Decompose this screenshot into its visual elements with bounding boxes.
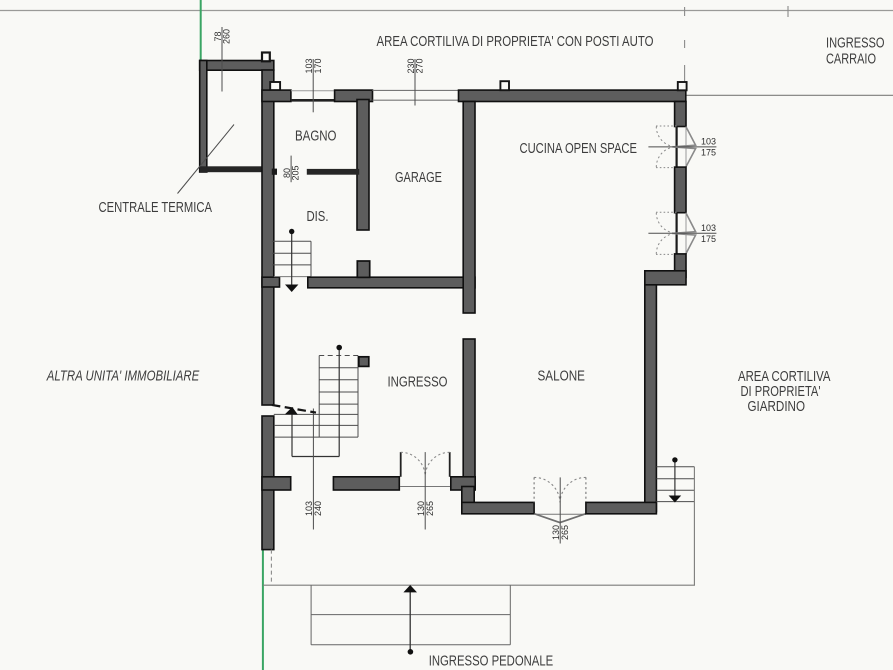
svg-text:270: 270 (415, 58, 425, 73)
svg-text:AREA CORTILIVA DI PROPRIETA' C: AREA CORTILIVA DI PROPRIETA' CON POSTI A… (377, 34, 654, 50)
svg-text:175: 175 (701, 148, 716, 158)
svg-text:INGRESSO PEDONALE: INGRESSO PEDONALE (429, 654, 554, 670)
svg-text:DIS.: DIS. (307, 209, 329, 225)
svg-text:CARRAIO: CARRAIO (826, 52, 876, 68)
svg-text:103: 103 (701, 223, 716, 233)
svg-text:GIARDINO: GIARDINO (748, 399, 806, 415)
svg-text:INGRESSO: INGRESSO (826, 36, 885, 52)
svg-text:265: 265 (425, 501, 435, 516)
svg-text:175: 175 (701, 234, 716, 244)
svg-text:GARAGE: GARAGE (395, 170, 442, 186)
svg-text:AREA CORTILIVA: AREA CORTILIVA (738, 369, 831, 385)
svg-text:BAGNO: BAGNO (295, 129, 337, 145)
svg-text:ALTRA UNITA' IMMOBILIARE: ALTRA UNITA' IMMOBILIARE (46, 369, 200, 385)
svg-text:265: 265 (560, 525, 570, 540)
svg-text:103: 103 (701, 137, 716, 147)
svg-text:260: 260 (222, 29, 232, 44)
svg-text:INGRESSO: INGRESSO (388, 375, 448, 391)
svg-text:170: 170 (313, 58, 323, 73)
svg-text:CENTRALE TERMICA: CENTRALE TERMICA (99, 200, 213, 216)
svg-text:205: 205 (291, 165, 301, 180)
svg-text:240: 240 (313, 501, 323, 516)
svg-text:DI PROPRIETA': DI PROPRIETA' (741, 384, 821, 400)
svg-text:SALONE: SALONE (538, 369, 586, 385)
svg-text:CUCINA OPEN SPACE: CUCINA OPEN SPACE (520, 141, 638, 157)
